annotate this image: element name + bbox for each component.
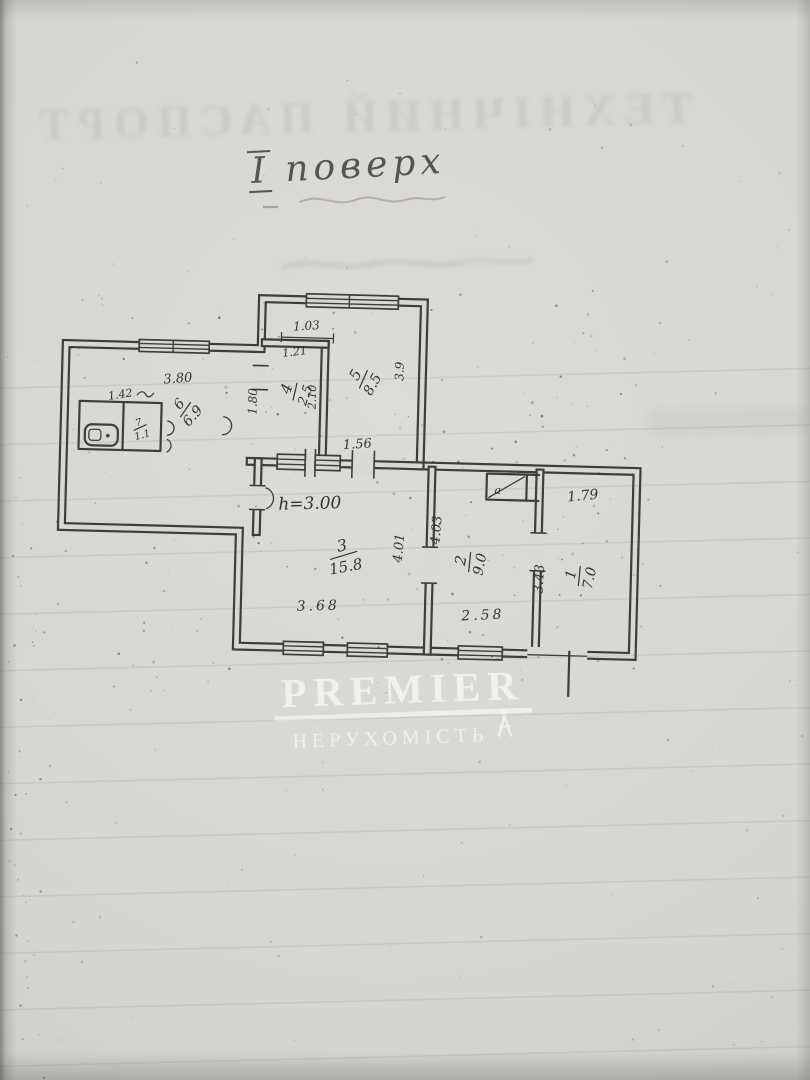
- svg-text:7.0: 7.0: [580, 566, 600, 591]
- room-3-label: 3 15.8: [324, 533, 364, 578]
- dim-passage-top: 1.03: [293, 318, 321, 334]
- dim-room2-bottom: 2.58: [460, 607, 505, 625]
- dim-room4-width: 1.21: [282, 344, 308, 360]
- bathtub-icon: [85, 424, 119, 446]
- dim-room3-depth: 4.01: [391, 533, 409, 564]
- floor-plan: 1.03 1.21 2.10 3.9 1.56 3.80 1.42 1.80 h…: [57, 288, 641, 699]
- dim-room5-bottom: 1.56: [342, 436, 372, 453]
- floor-plan-drawing: 1.03 1.21 2.10 3.9 1.56 3.80 1.42 1.80 h…: [0, 0, 810, 1080]
- svg-text:2: 2: [451, 554, 471, 568]
- dim-room1-top: 1.79: [567, 487, 600, 506]
- room-2-label: 2 9.0: [450, 548, 491, 577]
- dim-room3-bottom: 3.68: [296, 598, 340, 615]
- chimney-mark: [568, 651, 569, 697]
- dim-corridor: 1.80: [245, 388, 260, 415]
- svg-text:4: 4: [276, 381, 296, 397]
- room-7-label: 7 1.1: [130, 416, 152, 444]
- svg-text:9.0: 9.0: [470, 552, 490, 577]
- photocopy-noise: [6, 61, 804, 1079]
- svg-text:6: 6: [171, 396, 189, 413]
- room-4-label: 4 2.5: [274, 376, 316, 409]
- dim-room6-top: 3.80: [163, 370, 193, 387]
- handwriting-squiggle: [137, 392, 154, 397]
- closet-label: а: [494, 484, 501, 497]
- faint-pencil-marks: [263, 197, 532, 268]
- dim-room6-side: 1.42: [107, 386, 133, 402]
- room-5-label: 5 8.5: [342, 361, 385, 399]
- bathroom-partitions: [78, 401, 161, 451]
- room-1-label: 1 7.0: [561, 562, 600, 591]
- dim-room5-depth: 3.9: [392, 361, 407, 381]
- scanned-page: ТЕХНІЧНИЙ ПАСПОРТ Іповерх: [0, 0, 810, 1080]
- svg-text:1.1: 1.1: [133, 428, 151, 443]
- dim-room2-depth: 4.03: [428, 515, 446, 546]
- svg-text:3: 3: [335, 535, 348, 556]
- door-openings: [161, 363, 594, 661]
- dim-room1-depth: 3.43: [531, 564, 548, 594]
- ceiling-height-note: h=3.00: [278, 493, 342, 515]
- svg-text:1: 1: [563, 568, 580, 580]
